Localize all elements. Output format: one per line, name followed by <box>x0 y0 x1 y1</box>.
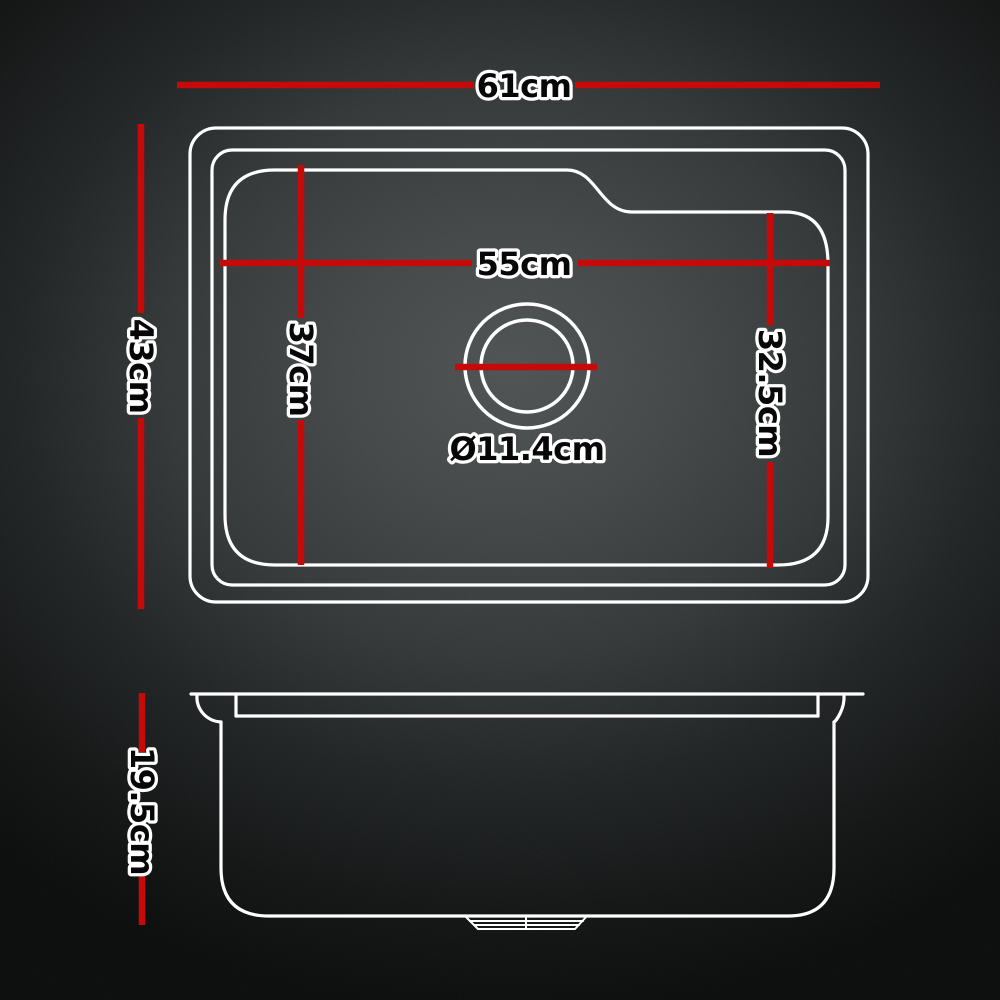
sink-dimension-diagram: 61cm 43cm 55cm 37cm 32.5cm Ø11.4cm 19.5c… <box>0 0 1000 1000</box>
bowl-right-depth-label: 32.5cm <box>751 329 789 457</box>
overall-depth-label: 43cm <box>122 319 160 414</box>
side-depth-label: 19.5cm <box>123 747 161 875</box>
overall-width-label: 61cm <box>477 67 572 105</box>
bowl-depth-label: 37cm <box>282 322 320 417</box>
bowl-width-label: 55cm <box>477 245 572 283</box>
drain-diameter-label: Ø11.4cm <box>450 430 605 468</box>
